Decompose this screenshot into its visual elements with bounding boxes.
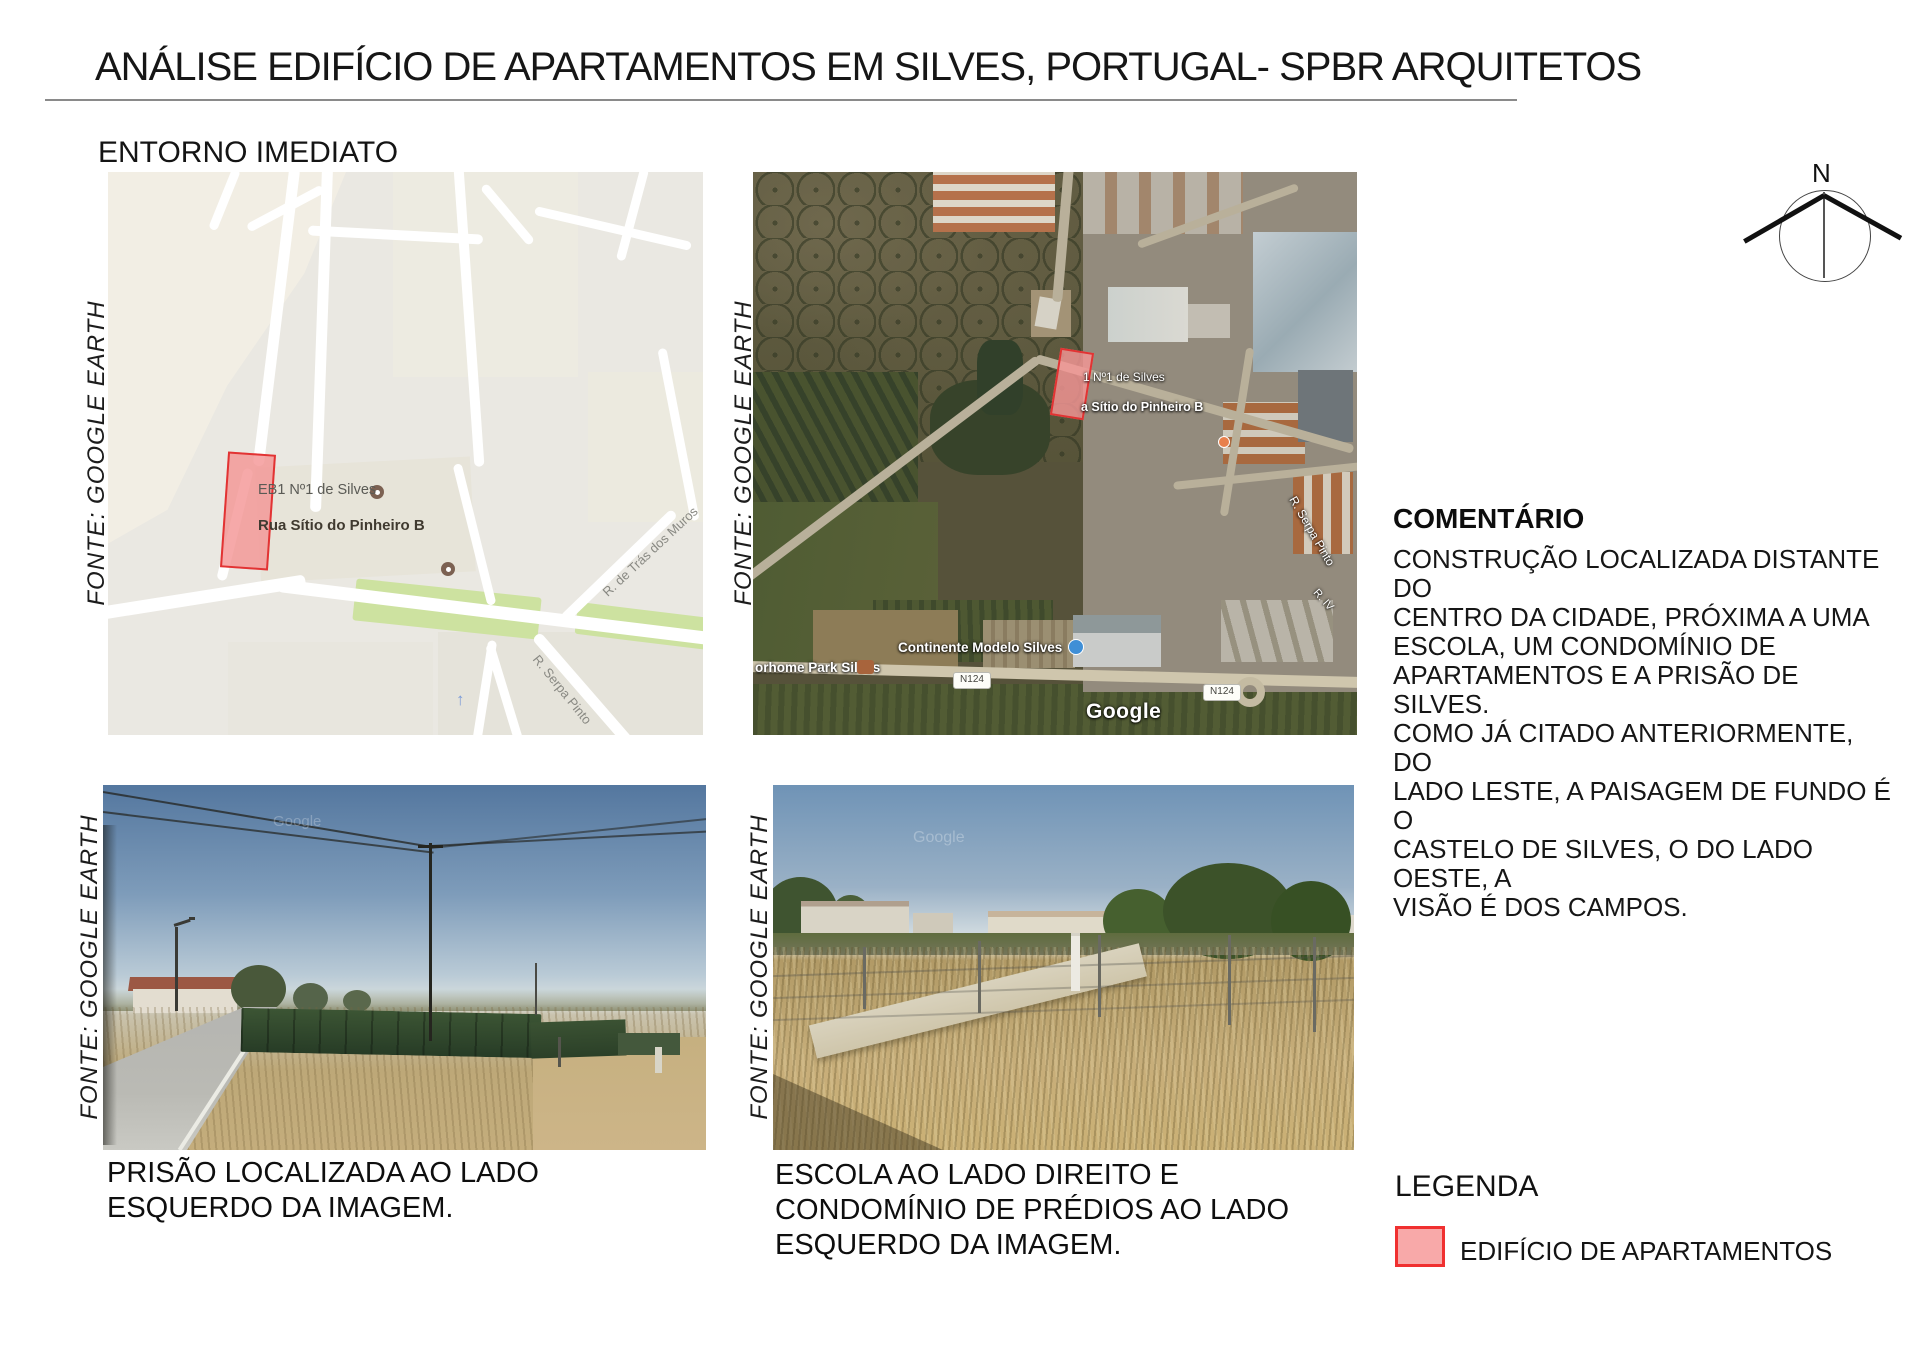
- fence-post: [1313, 937, 1316, 1032]
- fence-post: [1098, 935, 1101, 1017]
- compass-north-label: N: [1812, 158, 1831, 189]
- utility-pole: [429, 843, 432, 1041]
- google-watermark: Google: [913, 829, 965, 847]
- map-road-main: [108, 574, 306, 620]
- analysis-board: ANÁLISE EDIFÍCIO DE APARTAMENTOS EM SILV…: [0, 0, 1920, 1357]
- poi-icon[interactable]: [441, 562, 455, 576]
- fence-post: [978, 941, 981, 1013]
- street-lamp-head: [189, 917, 195, 920]
- comment-body: CONSTRUÇÃO LOCALIZADA DISTANTE DO CENTRO…: [1393, 545, 1893, 922]
- fence-post: [863, 947, 866, 1009]
- sat-apartments: [1221, 600, 1333, 662]
- sat-orchard: [753, 372, 918, 517]
- shopping-poi-icon[interactable]: [1068, 639, 1084, 655]
- compass-circle: [1779, 190, 1871, 282]
- google-watermark: Google: [1086, 700, 1161, 724]
- sat-rowhouses: [933, 172, 1055, 232]
- green-mesh-fence: [241, 1008, 542, 1058]
- street-map-image[interactable]: ↑ EB1 Nº1 de Silves Rua Sítio do Pinheir…: [108, 172, 703, 735]
- sat-school-building: [1108, 287, 1188, 342]
- sat-label-supermarket: Continente Modelo Silves: [898, 640, 1062, 655]
- caption-photo-right: ESCOLA AO LADO DIREITO E CONDOMÍNIO DE P…: [775, 1158, 1289, 1263]
- sat-industrial-roof: [1253, 232, 1357, 372]
- source-label-photo-left: FONTE: GOOGLE EARTH: [76, 814, 104, 1119]
- legend-heading: LEGENDA: [1395, 1170, 1538, 1204]
- section-heading: ENTORNO IMEDIATO: [98, 136, 398, 170]
- sat-buildings: [1083, 172, 1243, 234]
- green-mesh-fence: [530, 1019, 626, 1058]
- map-label-street-main: Rua Sítio do Pinheiro B: [258, 517, 425, 534]
- road-shield-n124: N124: [953, 672, 991, 689]
- marker-post: [655, 1047, 662, 1073]
- fence-post: [1228, 935, 1231, 1025]
- one-way-arrow-icon: ↑: [456, 690, 465, 710]
- road-shield-n124: N124: [1203, 684, 1241, 701]
- sat-label-school: 1 Nº1 de Silves: [1083, 370, 1165, 384]
- map-label-school: EB1 Nº1 de Silves: [258, 482, 376, 498]
- photo-dark-edge: [103, 825, 117, 1145]
- comment-heading: COMENTÁRIO: [1393, 503, 1584, 535]
- poi-icon[interactable]: [1218, 436, 1230, 448]
- hedge: [618, 1033, 680, 1055]
- fence-post: [558, 1037, 561, 1067]
- map-road: [616, 172, 649, 262]
- apartment-parcel-highlight: [220, 451, 276, 570]
- white-post: [1071, 933, 1080, 991]
- source-label-street-map: FONTE: GOOGLE EARTH: [83, 300, 111, 605]
- page-title: ANÁLISE EDIFÍCIO DE APARTAMENTOS EM SILV…: [95, 45, 1641, 90]
- motorhome-poi-icon[interactable]: [857, 660, 874, 674]
- distant-pole: [535, 963, 537, 1015]
- photo-school-field[interactable]: Google: [773, 785, 1354, 1150]
- compass-needle: [1823, 192, 1825, 278]
- sat-label-street-sitio: a Sítio do Pinheiro B: [1081, 400, 1203, 414]
- tree: [231, 965, 286, 1013]
- street-lamp-pole: [175, 927, 178, 1011]
- map-block: [393, 172, 578, 377]
- sat-building: [1188, 304, 1230, 338]
- legend-swatch-apartment: [1395, 1226, 1445, 1267]
- photo-prison-street[interactable]: Google: [103, 785, 706, 1150]
- title-divider: [45, 99, 1517, 101]
- pole-crossarm: [418, 845, 443, 848]
- satellite-image[interactable]: 1 Nº1 de Silves a Sítio do Pinheiro B R.…: [753, 172, 1357, 735]
- sat-store-building: [1073, 615, 1161, 667]
- legend-item-label: EDIFÍCIO DE APARTAMENTOS: [1460, 1236, 1832, 1267]
- map-block: [228, 642, 433, 735]
- caption-photo-left: PRISÃO LOCALIZADA AO LADO ESQUERDO DA IM…: [107, 1156, 539, 1226]
- source-label-photo-right: FONTE: GOOGLE EARTH: [746, 814, 774, 1119]
- google-watermark: Google: [273, 813, 321, 830]
